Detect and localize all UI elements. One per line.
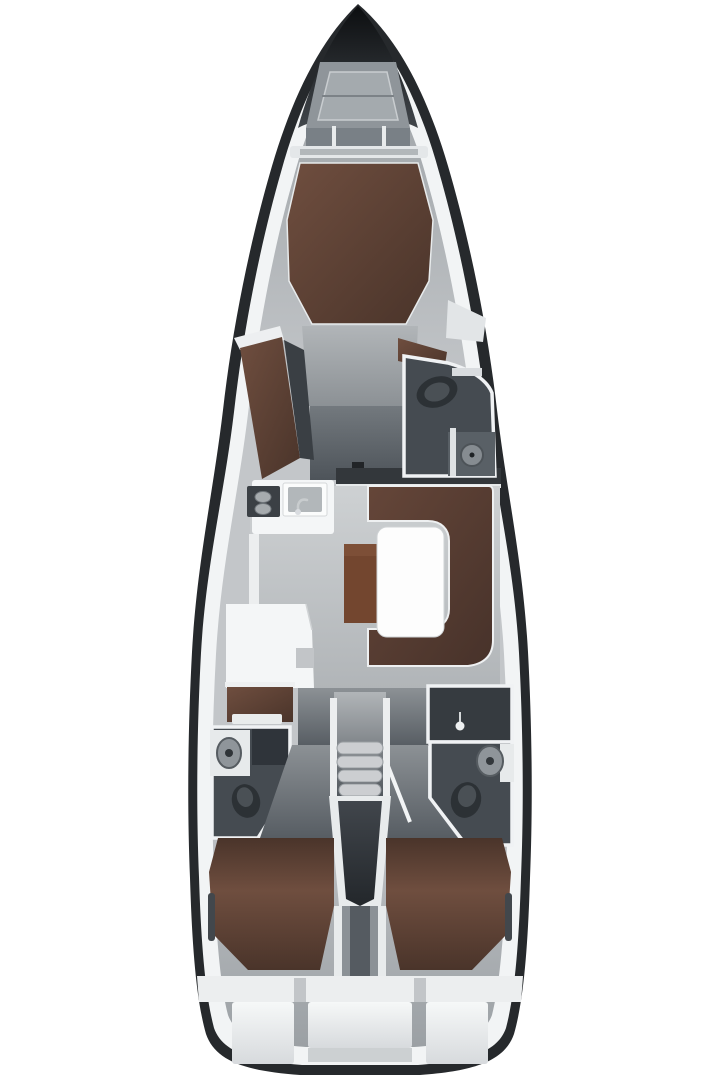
nav-table-edge <box>225 682 295 687</box>
forward-cabin-floor <box>302 326 418 406</box>
stern-beam <box>197 976 523 1002</box>
bow-post-left <box>332 126 336 146</box>
center-channel-left-wall <box>334 906 342 986</box>
forward-head <box>404 356 495 476</box>
stern-locker-center <box>308 1002 412 1048</box>
stove-burner-1 <box>255 492 271 503</box>
stairs-rail-left <box>330 698 337 802</box>
side-vent-port <box>208 893 215 941</box>
stairs-rail-right <box>383 698 390 802</box>
stern-section <box>197 976 523 1064</box>
saloon-bench-cap <box>344 544 379 556</box>
bow-cross-beam-inner <box>300 149 418 155</box>
stair-tread-2 <box>337 756 383 768</box>
shower-drain-dot <box>470 453 475 458</box>
floorplan-svg: Top-down interior layout plan of a saili… <box>0 0 720 1080</box>
stove-burner-2 <box>255 504 271 515</box>
center-channel-core <box>350 906 370 982</box>
galley-side-strip <box>249 534 259 606</box>
saloon-table <box>377 527 444 637</box>
galley-counter-aft <box>226 604 314 688</box>
stair-tread-4 <box>339 784 381 796</box>
port-cabinet <box>252 729 288 765</box>
stbd-shower-head-icon <box>456 722 465 731</box>
nav-chart-table <box>232 714 282 724</box>
port-sink-drain <box>225 749 233 757</box>
forward-head-shelf <box>452 368 482 376</box>
shower-divider <box>450 428 456 476</box>
stern-locker-right <box>426 1002 488 1064</box>
side-vent-starboard <box>505 893 512 941</box>
stair-tread-3 <box>338 770 382 782</box>
stern-locker-left <box>232 1002 294 1064</box>
stbd-sink-drain <box>486 757 494 765</box>
bow-post-right <box>382 126 386 146</box>
faucet-base <box>295 509 301 515</box>
galley-counter-notch <box>296 648 314 668</box>
stbd-shower-room <box>428 686 512 742</box>
vberth-bed <box>287 163 433 324</box>
stern-locker-shelf <box>308 1048 412 1062</box>
stern-beam-gap-right <box>414 978 426 1002</box>
center-channel-right-wall <box>378 906 386 986</box>
yacht-floorplan-image: Top-down interior layout plan of a saili… <box>0 0 720 1080</box>
anchor-locker-sill <box>306 128 410 146</box>
stern-beam-gap-left <box>294 978 306 1002</box>
stair-tread-1 <box>337 742 383 754</box>
